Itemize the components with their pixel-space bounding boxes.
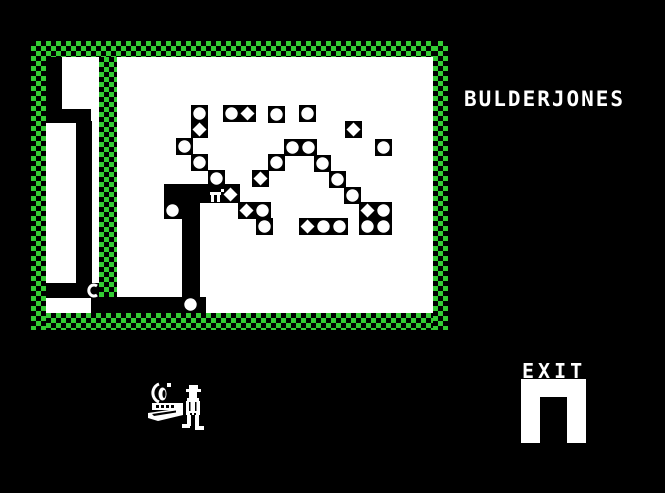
game-title: BULDERJONES: [464, 87, 625, 111]
border-right: [433, 41, 448, 330]
boulder-tile: [375, 218, 392, 235]
boulder-tile: [268, 154, 285, 171]
boulder-tile: [182, 296, 199, 313]
player-sprite: [209, 188, 225, 204]
boulder-tile: [223, 105, 240, 122]
diamond-tile: [299, 218, 316, 235]
left-shaft-lower: [76, 121, 92, 284]
boulder-tile: [359, 218, 376, 235]
left-shaft-top: [46, 57, 62, 111]
diamond-tile: [359, 202, 376, 219]
boulder-tile: [375, 202, 392, 219]
boulder-tile: [191, 154, 208, 171]
boulder-tile: [191, 105, 208, 122]
boulder-tile: [300, 139, 317, 156]
diamond-tile: [345, 121, 362, 138]
boulder-tile: [254, 202, 271, 219]
boulder-tile: [284, 139, 301, 156]
boulder-tile: [331, 218, 348, 235]
boulder-tile: [329, 171, 346, 188]
diamond-tile: [238, 202, 255, 219]
border-bottom: [31, 313, 448, 330]
boulder-tile: [315, 218, 332, 235]
inner-wall-vertical: [99, 57, 117, 297]
miner-life-sprite: [146, 380, 208, 432]
boulder-tile: [256, 218, 273, 235]
boulder-tile: [268, 106, 285, 123]
game-screen[interactable]: BULDERJONES EXIT: [0, 0, 665, 493]
diamond-tile: [252, 170, 269, 187]
boulder-tile: [299, 105, 316, 122]
tunnel-vertical: [182, 202, 200, 298]
boulder-tile: [314, 155, 331, 172]
boulder-tile: [208, 170, 225, 187]
creature-c-sprite: [86, 283, 100, 298]
border-top: [31, 41, 448, 57]
exit-door: [521, 379, 586, 443]
exit-door-opening: [540, 397, 567, 443]
boulder-tile: [375, 139, 392, 156]
boulder-tile: [176, 138, 193, 155]
border-left: [31, 41, 46, 330]
boulder-tile: [164, 202, 181, 219]
diamond-tile: [239, 105, 256, 122]
diamond-tile: [191, 121, 208, 138]
